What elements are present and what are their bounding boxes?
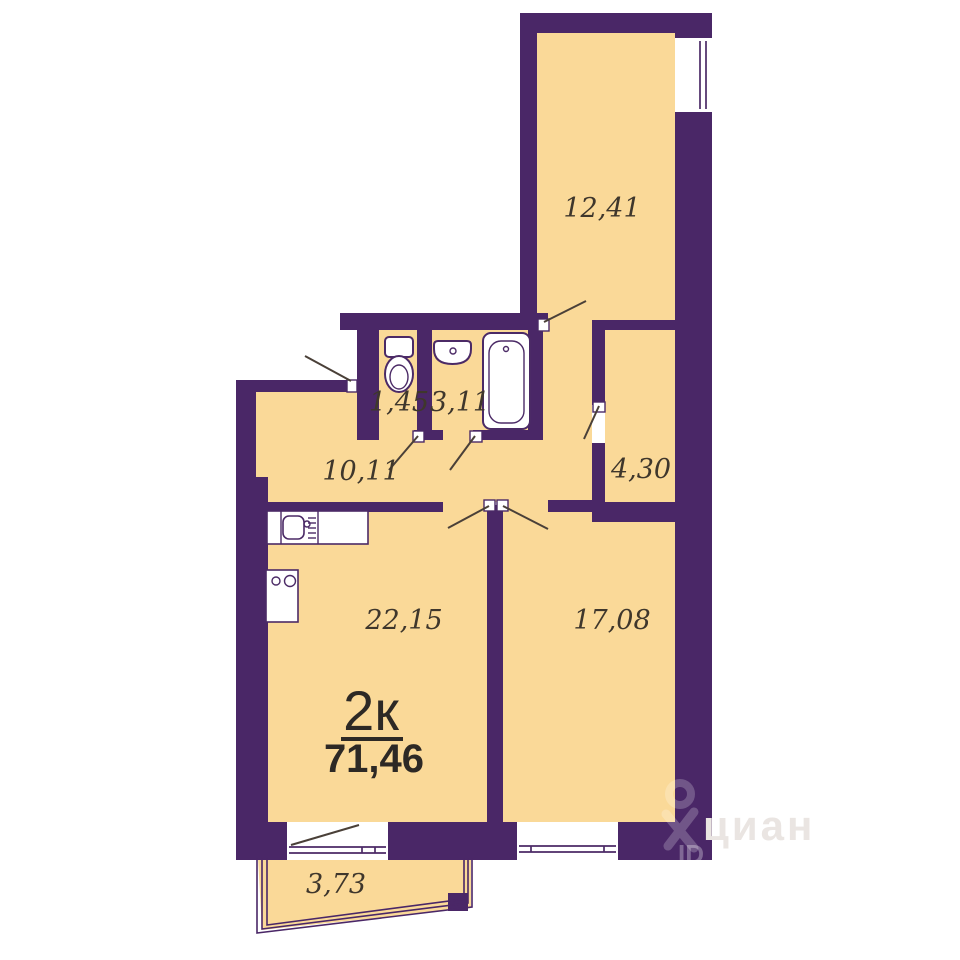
basin-body — [434, 341, 471, 364]
room-area-label: 17,08 — [573, 605, 650, 636]
floor-plan-canvas: 12,41 1,45 3,11 10,11 4,30 22,15 17,08 3… — [0, 0, 960, 960]
stove-icon — [266, 570, 298, 622]
apartment-total-area: 71,46 — [324, 737, 424, 781]
watermark-badge: ID — [678, 839, 704, 869]
wall-segment — [520, 33, 537, 330]
wall-segment — [357, 330, 379, 440]
door-hinge-plate — [497, 500, 508, 511]
wall-segment — [236, 478, 268, 822]
sink-basin — [283, 516, 304, 539]
room-area-label: 12,41 — [563, 193, 640, 224]
room-area-label: 3,11 — [430, 387, 490, 418]
wall-segment — [256, 477, 268, 512]
wall-segment — [548, 500, 605, 512]
room-area-label: 3,73 — [306, 869, 366, 900]
apartment-rooms-label: 2к — [343, 679, 399, 742]
room-area-label: 1,45 — [369, 387, 429, 418]
stove-body — [266, 570, 298, 622]
floor-bedroom — [503, 502, 675, 822]
wall-segment — [592, 443, 605, 502]
window-bedroom — [517, 822, 618, 860]
wall-segment — [417, 330, 432, 440]
wall-segment — [675, 13, 712, 860]
toilet-icon — [385, 337, 413, 392]
wall-segment — [236, 822, 287, 860]
room-area-label: 10,11 — [322, 456, 399, 487]
window-room-upper — [675, 38, 712, 112]
wall-segment — [388, 822, 517, 860]
door-hinge-plate — [484, 500, 495, 511]
door-hinge-plate — [347, 380, 357, 392]
window-opening — [517, 822, 618, 860]
wall-segment — [340, 313, 548, 330]
wall-segment — [592, 330, 605, 405]
room-area-label: 4,30 — [610, 454, 671, 485]
wash-basin-icon — [434, 341, 471, 364]
wall-segment — [487, 505, 503, 822]
toilet-tank — [385, 337, 413, 357]
watermark-brand: циан — [703, 802, 815, 849]
kitchen-sink-icon — [267, 511, 368, 544]
wall-segment — [473, 430, 543, 440]
wall-segment — [592, 320, 675, 330]
wall-segment — [236, 380, 256, 478]
room-area-label: 22,15 — [364, 605, 442, 636]
floor-room-upper — [537, 33, 675, 330]
